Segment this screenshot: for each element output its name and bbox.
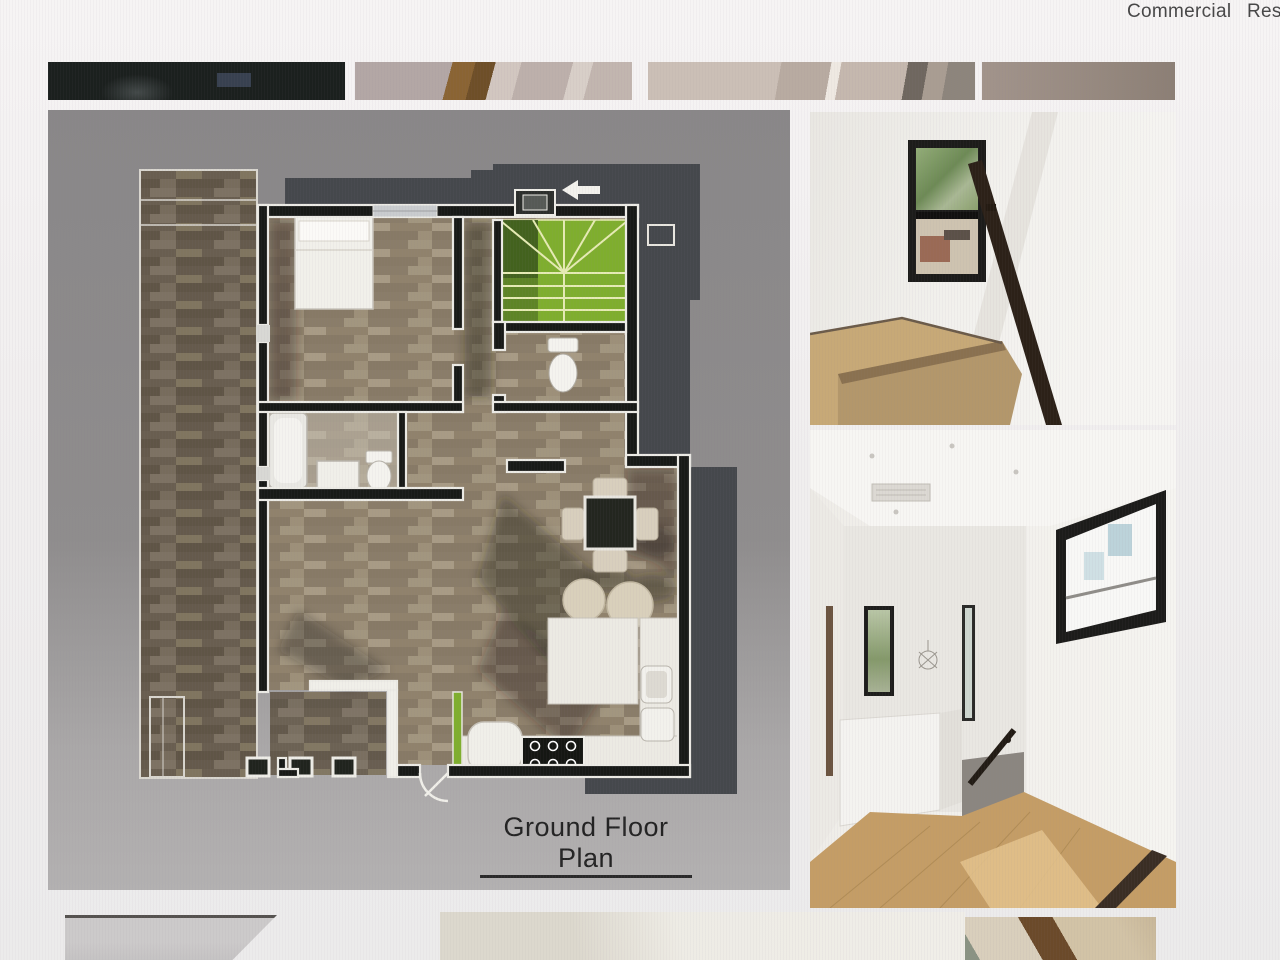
plan-caption: Ground Floor Plan bbox=[480, 812, 692, 878]
partial-photo-wood-beam[interactable] bbox=[965, 917, 1156, 960]
deck-stools bbox=[247, 758, 355, 776]
browser-page: Commercial Res bbox=[0, 0, 1280, 960]
deck bbox=[140, 170, 257, 778]
top-nav: Commercial Res bbox=[0, 0, 1280, 30]
wc-toilet bbox=[548, 338, 578, 392]
green-door-strip bbox=[453, 692, 462, 772]
door-frame bbox=[826, 606, 833, 776]
partial-photo-wall-corner[interactable] bbox=[65, 915, 277, 960]
tall-window-1 bbox=[864, 606, 894, 696]
bathroom-toilet bbox=[366, 451, 392, 491]
thumbnail-dark-exterior[interactable] bbox=[48, 62, 345, 100]
photo-upper-hallway[interactable] bbox=[810, 430, 1176, 908]
partial-photo-ceiling[interactable] bbox=[440, 912, 965, 960]
staircase bbox=[502, 220, 626, 322]
bed bbox=[295, 217, 373, 309]
floor-plan-image[interactable]: Ground Floor Plan bbox=[48, 110, 790, 890]
thumbnail-wall-gradient[interactable] bbox=[982, 62, 1175, 100]
nav-item-commercial[interactable]: Commercial bbox=[1127, 1, 1231, 23]
chimney bbox=[515, 190, 555, 215]
stair-landing-scene bbox=[810, 112, 1176, 425]
tall-window-2 bbox=[962, 605, 975, 721]
hallway-scene bbox=[810, 430, 1176, 908]
floor-plan-drawing bbox=[48, 110, 790, 890]
bathtub bbox=[269, 413, 307, 488]
thumbnail-wood-detail[interactable] bbox=[355, 62, 632, 100]
bathroom-vanity bbox=[317, 461, 359, 488]
stair-window bbox=[908, 140, 986, 282]
nav-item-residential[interactable]: Res bbox=[1247, 1, 1280, 23]
ceiling-vent bbox=[872, 484, 930, 501]
exterior-steps bbox=[263, 692, 386, 802]
photo-stair-landing[interactable] bbox=[810, 112, 1176, 425]
stair-halfwall bbox=[840, 709, 962, 826]
thumbnail-stair-detail[interactable] bbox=[648, 62, 975, 100]
door-swing bbox=[420, 773, 448, 801]
